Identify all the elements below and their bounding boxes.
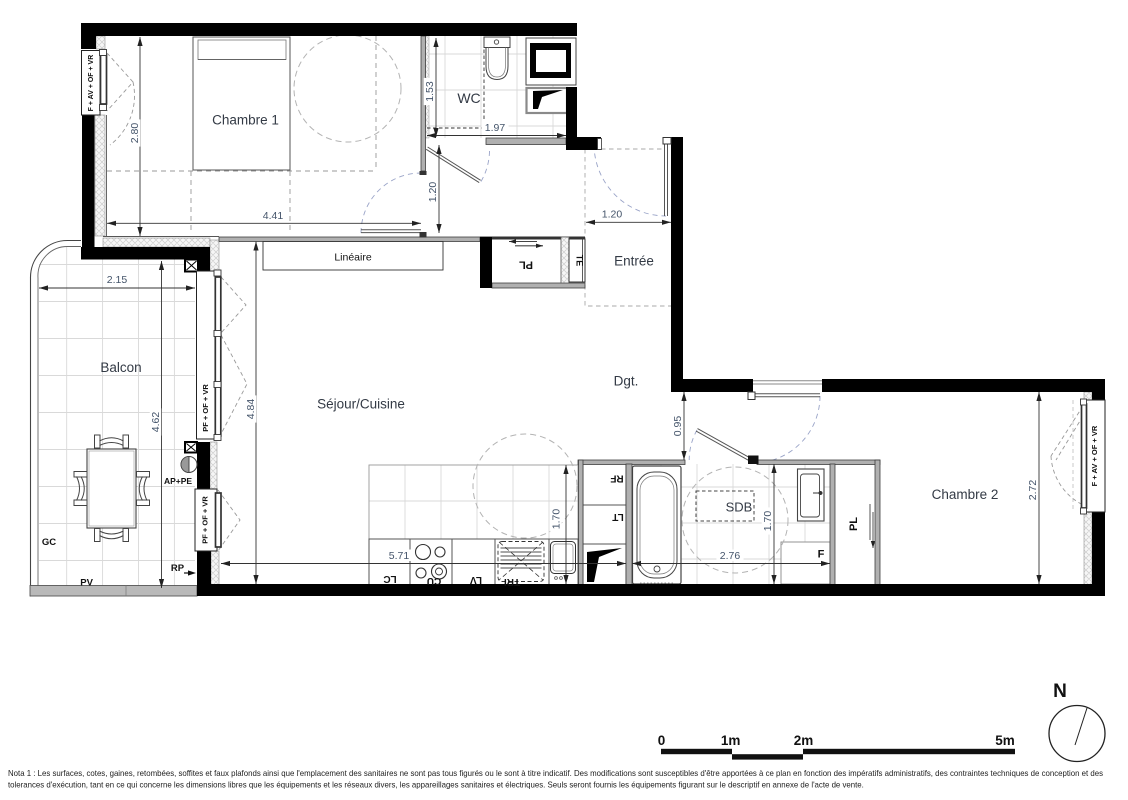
svg-text:Chambre 2: Chambre 2: [932, 487, 999, 502]
svg-text:F: F: [818, 549, 825, 561]
svg-text:0: 0: [658, 733, 666, 748]
svg-text:PL: PL: [848, 517, 860, 531]
svg-text:5.71: 5.71: [389, 550, 410, 562]
svg-text:TE: TE: [575, 255, 585, 267]
svg-text:SDB: SDB: [726, 500, 753, 515]
svg-text:1.20: 1.20: [602, 209, 623, 221]
svg-text:2.76: 2.76: [720, 550, 741, 562]
svg-text:TRI: TRI: [504, 576, 520, 587]
svg-text:1.70: 1.70: [762, 511, 774, 532]
svg-text:CU: CU: [427, 575, 441, 586]
svg-text:1m: 1m: [721, 733, 741, 748]
svg-text:LC: LC: [383, 573, 396, 584]
svg-text:4.41: 4.41: [263, 210, 284, 222]
svg-text:1.97: 1.97: [485, 122, 506, 134]
svg-text:AP+PE: AP+PE: [164, 476, 192, 486]
svg-text:RF: RF: [610, 473, 623, 484]
svg-text:4.84: 4.84: [245, 399, 257, 420]
svg-text:tolerances d'exécution, tant e: tolerances d'exécution, tant en ce qui c…: [8, 781, 864, 790]
svg-text:LV: LV: [470, 574, 482, 585]
svg-text:Dgt.: Dgt.: [614, 374, 639, 389]
svg-text:RP: RP: [171, 563, 185, 574]
svg-text:Chambre 1: Chambre 1: [212, 113, 279, 128]
svg-text:1.70: 1.70: [551, 509, 563, 530]
svg-text:GC: GC: [42, 537, 56, 548]
svg-text:2.80: 2.80: [129, 123, 141, 144]
svg-text:PV: PV: [80, 578, 93, 589]
svg-text:Entrée: Entrée: [614, 254, 654, 269]
svg-text:PF + OF + VR: PF + OF + VR: [201, 384, 210, 432]
svg-text:PL: PL: [519, 259, 533, 271]
svg-text:2.72: 2.72: [1027, 480, 1039, 501]
svg-text:N: N: [1053, 681, 1067, 702]
svg-text:Séjour/Cuisine: Séjour/Cuisine: [317, 397, 405, 412]
svg-text:F + AV + OF + VR: F + AV + OF + VR: [1090, 425, 1099, 486]
svg-text:0.95: 0.95: [672, 416, 684, 437]
svg-text:F + AV + OF + VR: F + AV + OF + VR: [88, 55, 95, 112]
svg-text:2.15: 2.15: [107, 274, 128, 286]
svg-text:5m: 5m: [995, 733, 1015, 748]
svg-text:1.20: 1.20: [427, 182, 439, 203]
svg-text:2m: 2m: [794, 733, 814, 748]
svg-text:WC: WC: [457, 90, 480, 106]
svg-text:4.62: 4.62: [150, 412, 162, 433]
svg-text:1.53: 1.53: [424, 81, 436, 102]
svg-text:LT: LT: [612, 511, 623, 522]
svg-text:Linéaire: Linéaire: [334, 252, 372, 264]
svg-text:Balcon: Balcon: [100, 360, 141, 375]
svg-text:PF + OF + VR: PF + OF + VR: [201, 496, 210, 544]
svg-text:Nota 1 : Les surfaces, cotes,: Nota 1 : Les surfaces, cotes, gaines, re…: [8, 769, 1103, 778]
